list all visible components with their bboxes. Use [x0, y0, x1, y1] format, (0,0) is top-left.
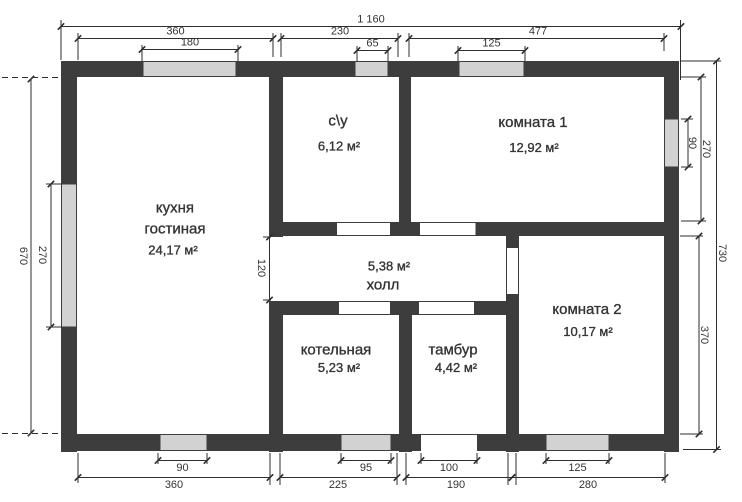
svg-text:225: 225	[329, 479, 347, 491]
svg-text:65: 65	[366, 38, 378, 50]
svg-text:100: 100	[440, 462, 458, 474]
svg-text:кухня: кухня	[156, 199, 194, 216]
svg-text:24,17 м²: 24,17 м²	[148, 243, 198, 258]
svg-text:670: 670	[17, 247, 29, 265]
svg-text:5,38 м²: 5,38 м²	[368, 259, 411, 274]
svg-text:1 160: 1 160	[357, 14, 385, 26]
svg-text:477: 477	[529, 26, 547, 38]
svg-text:360: 360	[165, 479, 183, 491]
svg-text:125: 125	[568, 462, 586, 474]
svg-text:холл: холл	[367, 276, 400, 293]
svg-text:270: 270	[36, 246, 48, 264]
svg-text:180: 180	[181, 37, 199, 49]
svg-text:4,42 м²: 4,42 м²	[435, 360, 478, 375]
svg-text:125: 125	[482, 38, 500, 50]
svg-text:90: 90	[686, 137, 698, 149]
svg-text:комната 2: комната 2	[552, 301, 621, 318]
svg-text:с\у: с\у	[328, 112, 348, 129]
svg-text:190: 190	[447, 479, 465, 491]
svg-text:230: 230	[331, 26, 349, 38]
svg-text:730: 730	[716, 244, 728, 262]
svg-text:гостиная: гостиная	[145, 220, 206, 237]
svg-text:10,17 м²: 10,17 м²	[563, 324, 613, 339]
svg-text:90: 90	[176, 462, 188, 474]
svg-text:комната 1: комната 1	[498, 114, 567, 131]
svg-text:тамбур: тамбур	[428, 341, 477, 358]
svg-text:120: 120	[255, 259, 267, 277]
svg-text:5,23 м²: 5,23 м²	[318, 360, 361, 375]
svg-text:6,12 м²: 6,12 м²	[318, 139, 361, 154]
svg-text:95: 95	[360, 462, 372, 474]
svg-text:270: 270	[700, 140, 712, 158]
svg-text:280: 280	[579, 479, 597, 491]
svg-text:370: 370	[698, 326, 710, 344]
svg-text:котельная: котельная	[301, 341, 372, 358]
svg-text:12,92 м²: 12,92 м²	[509, 140, 559, 155]
